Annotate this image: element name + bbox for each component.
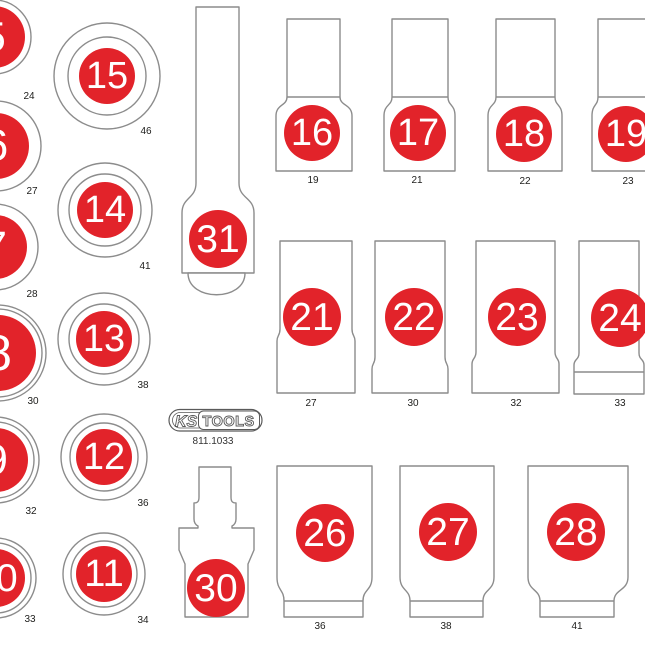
position-number: 17	[397, 114, 439, 152]
position-number: 16	[291, 114, 333, 152]
position-number: 30	[194, 569, 237, 608]
position-number: 19	[605, 115, 645, 153]
position-number: 13	[83, 320, 125, 358]
position-badge: 19	[598, 106, 645, 162]
diameter-label: 23	[622, 176, 633, 187]
logo-tools-text: TOOLS	[203, 414, 255, 430]
ks-tools-logo: KS TOOLS 811.1033	[169, 410, 262, 448]
position-number: 10	[0, 559, 18, 598]
position-badge: 30	[187, 559, 245, 617]
position-number: 31	[196, 220, 239, 259]
position-badge: 22	[385, 288, 443, 346]
position-badge: 18	[496, 106, 552, 162]
position-number: 27	[426, 513, 469, 552]
position-badge: 17	[390, 105, 446, 161]
position-badge: 21	[283, 288, 341, 346]
position-badge: 24	[591, 289, 645, 347]
position-number: 26	[303, 514, 346, 553]
diameter-label: 30	[27, 396, 38, 407]
diameter-label: 32	[25, 506, 36, 517]
position-badge: 12	[76, 429, 132, 485]
diameter-label: 32	[510, 398, 521, 409]
position-badge: 16	[284, 105, 340, 161]
diameter-label: 36	[137, 498, 148, 509]
diameter-label: 41	[139, 261, 150, 272]
diameter-label: 30	[407, 398, 418, 409]
position-badge: 23	[488, 288, 546, 346]
tool-tray-diagram: KS TOOLS 811.1033 5 6 7 8 9 10 15 14 13 …	[0, 0, 645, 645]
part-number: 811.1033	[193, 436, 234, 447]
position-number: 24	[598, 299, 641, 338]
position-badge: 13	[76, 311, 132, 367]
diameter-label: 27	[305, 398, 316, 409]
position-number: 8	[0, 328, 12, 378]
position-number: 5	[0, 16, 6, 58]
diameter-label: 19	[307, 175, 318, 186]
position-badge: 26	[296, 504, 354, 562]
diameter-label: 46	[140, 126, 151, 137]
diameter-label: 24	[23, 91, 34, 102]
diameter-label: 27	[26, 186, 37, 197]
position-badge: 14	[77, 182, 133, 238]
position-number: 23	[495, 298, 538, 337]
position-number: 7	[0, 226, 7, 269]
position-number: 12	[83, 438, 125, 476]
diameter-label: 41	[571, 621, 582, 632]
position-badge: 11	[76, 546, 132, 602]
position-number: 21	[290, 298, 333, 337]
diameter-label: 28	[26, 289, 37, 300]
position-badge: 31	[189, 210, 247, 268]
position-number: 14	[84, 191, 126, 229]
diameter-label: 33	[24, 614, 35, 625]
diameter-label: 21	[411, 175, 422, 186]
diameter-label: 34	[137, 615, 148, 626]
diameter-label: 22	[519, 176, 530, 187]
position-badge: 15	[79, 48, 135, 104]
diameter-label: 38	[440, 621, 451, 632]
diameter-label: 33	[614, 398, 625, 409]
logo-ks-text: KS	[175, 414, 198, 431]
position-number: 9	[0, 439, 8, 482]
diameter-label: 38	[137, 380, 148, 391]
position-number: 15	[86, 57, 128, 95]
position-badge: 28	[547, 503, 605, 561]
position-number: 22	[392, 298, 435, 337]
position-badge: 27	[419, 503, 477, 561]
position-number: 28	[554, 513, 597, 552]
position-number: 6	[0, 124, 8, 168]
position-number: 11	[84, 555, 123, 593]
position-number: 18	[503, 115, 545, 153]
diameter-label: 36	[314, 621, 325, 632]
